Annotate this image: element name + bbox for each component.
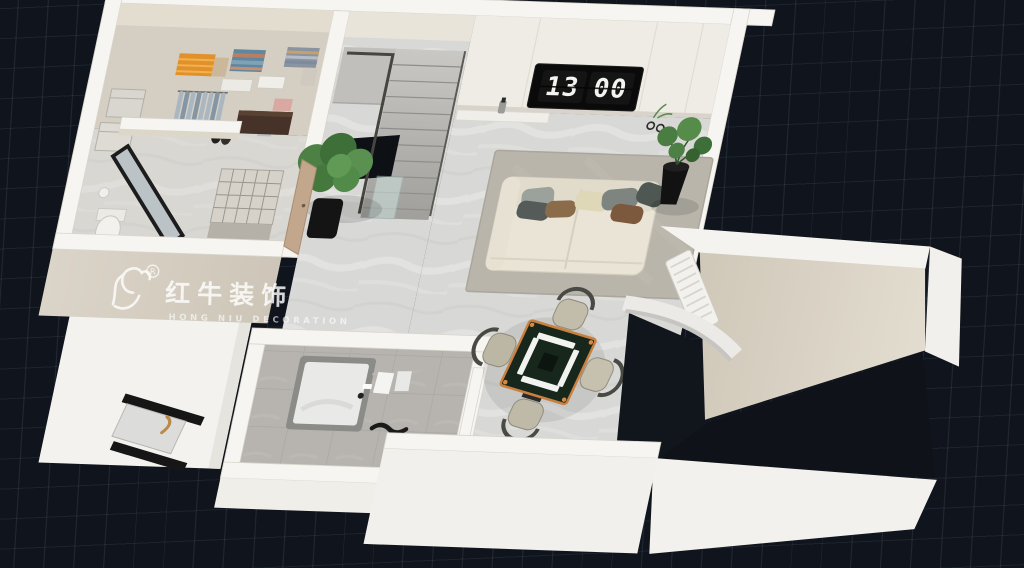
- living-south-face: [363, 449, 657, 554]
- folded-clothes-blue: [229, 49, 266, 72]
- render-viewport: 13 00: [0, 0, 1024, 568]
- hall-north-face: [344, 11, 475, 41]
- registered-letter: R: [150, 267, 156, 276]
- folded-whites-2: [257, 76, 286, 89]
- folded-whites-1: [220, 79, 253, 92]
- flip-clock: 13 00: [527, 64, 644, 111]
- soap-dish: [362, 384, 372, 389]
- storage-box-1: [106, 89, 146, 118]
- terrace: [38, 314, 252, 473]
- floorplan-render: 13 00: [0, 0, 1024, 568]
- floorplan: 13 00: [0, 0, 1024, 563]
- folded-pink: [272, 99, 293, 112]
- sofa: [484, 175, 671, 276]
- bathtub: [285, 356, 377, 432]
- brown-dresser: [234, 110, 293, 135]
- watermark-title: 红牛装饰: [165, 279, 294, 311]
- dresser-front: [207, 222, 272, 240]
- folded-clothes-multi: [284, 47, 320, 68]
